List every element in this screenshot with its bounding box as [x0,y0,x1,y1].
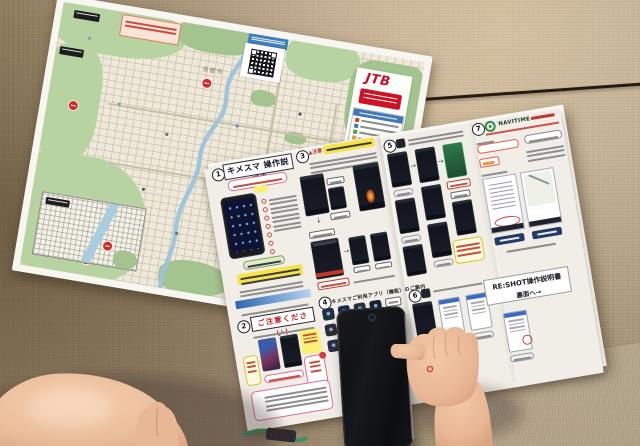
text-line [528,135,558,142]
legend-swatch [355,118,359,122]
step-label-pill [472,330,495,341]
text-line [48,199,68,204]
reshot-note: RE:SHOT操作説明書 裏面へ→ [483,266,572,306]
red-callout-label [317,277,350,290]
text-line [62,48,82,53]
screenshot-thumb [279,334,302,369]
section-6-icon [421,288,431,298]
jtb-red-box [358,88,402,110]
right-arrow: → [410,163,417,171]
screenshot-thumb [258,337,281,372]
qr-eye [270,52,277,59]
text-line [309,360,320,364]
text-line [359,112,397,120]
section-2-number: 2 [236,319,251,334]
text-line [247,365,256,368]
screenshot-thumb [352,162,385,212]
step-label-pill [444,335,467,346]
text-line [404,238,418,242]
text-line [448,339,464,344]
text-line [312,232,332,237]
text-line [445,315,459,319]
text-line [500,237,520,242]
text-line [397,191,411,195]
callout-label [353,265,371,274]
text-line [537,230,557,235]
dark-label-pill [494,233,525,246]
screenshot-thumb [387,151,412,188]
legend-swatch [354,124,358,128]
smartphone [336,306,414,446]
navitime-logo [484,120,497,133]
text-line [457,251,481,257]
pink-label [264,369,305,383]
text-line [450,182,468,187]
screenshot-thumb [310,238,344,280]
text-line [247,260,281,268]
red-strip [316,269,344,278]
text-line [506,242,556,252]
text-line [246,360,255,363]
orange-fill-bar [483,161,495,166]
section-6-header-lines [432,279,482,294]
callout-label [450,189,471,199]
caption-lines [526,142,566,164]
scene-photo: 京都市 JTB [0,0,640,446]
text-line [454,193,468,197]
screenshot-thumb [395,197,420,234]
red-circle-annotation [522,334,534,346]
red-callout-label [446,178,471,190]
screenshot-thumb-green [442,142,467,179]
screenshot-thumb [328,186,347,210]
yellow-note-left [242,355,262,387]
instruction-list [268,192,302,235]
map-screenshot [520,167,563,228]
route-screenshot [482,173,525,234]
qr-eye [251,49,258,56]
flame-graphic [366,189,376,203]
phone-illustration [220,193,266,260]
screenshot-thumb [414,146,439,183]
text-line [510,328,526,332]
screenshot-thumb-light [503,309,533,352]
url-bar [313,240,337,247]
screenshot-thumb-light [446,347,475,383]
screenshot-thumb [452,199,477,236]
legend-swatch [353,130,357,134]
screenshot-thumb [421,184,446,221]
text-line [437,262,451,266]
pink-bullet-box [250,379,334,422]
input-outline-small [479,156,500,168]
screenshot-thumb [348,235,369,265]
text-line [453,363,469,367]
text-line [378,265,389,269]
yellow-note-right [299,328,323,355]
right-arrow: → [437,158,444,166]
text-line [310,364,321,368]
text-line [357,269,368,273]
text-line [388,300,398,304]
map-qr-code [240,43,285,83]
map-landmark-specks [88,37,91,40]
down-arrow: ↓ [315,217,322,225]
mini-map-graphic [523,171,556,207]
qr-eye [247,67,254,74]
screenshot-thumb-light [438,296,466,335]
text-line [330,180,342,184]
section-3-warn-label: ▲注意 [308,147,323,158]
dark-label-pill [532,227,563,240]
screenshot-thumb [402,244,427,277]
text-line [472,311,486,315]
phone-illustration-screen [223,197,261,253]
screenshot-header-bar [466,293,486,300]
callout-label [375,261,393,270]
step-label-pill [401,234,422,244]
callout-label [330,210,351,220]
step-label-pill [393,188,414,198]
section-5-icon [396,138,406,148]
phone-camera-dot [369,315,374,320]
app-icon [324,323,338,337]
right-arrow: → [343,248,350,256]
text-line [248,369,257,372]
caption-lines [353,272,396,286]
text-line [304,339,318,343]
step-label-pill [510,352,535,363]
app-icon [322,307,336,321]
text-line [433,282,483,292]
step-label-pill [433,258,454,268]
text-line [455,383,473,388]
text-line [475,334,491,339]
section-7-red-text [531,113,555,120]
red-alert-dot [319,351,327,359]
text-line [353,274,395,283]
screenshot-thumb [370,231,391,261]
text-line [268,375,300,382]
text-line [333,214,347,218]
jtb-logo: JTB [364,71,391,90]
navitime-brand: NAVITIME [498,116,531,127]
text-line [310,369,321,373]
screenshot-header-bar [439,297,459,304]
screenshot-thumb [299,173,329,216]
yellow-note-box [452,236,486,265]
screenshot-thumb [427,221,452,258]
callout-tag [253,185,268,194]
text-line [321,281,347,287]
callout-label [326,176,345,186]
text-line [76,12,98,17]
screenshot-thumb [412,301,437,338]
screenshot-footer [529,217,561,227]
text-line [513,356,531,361]
